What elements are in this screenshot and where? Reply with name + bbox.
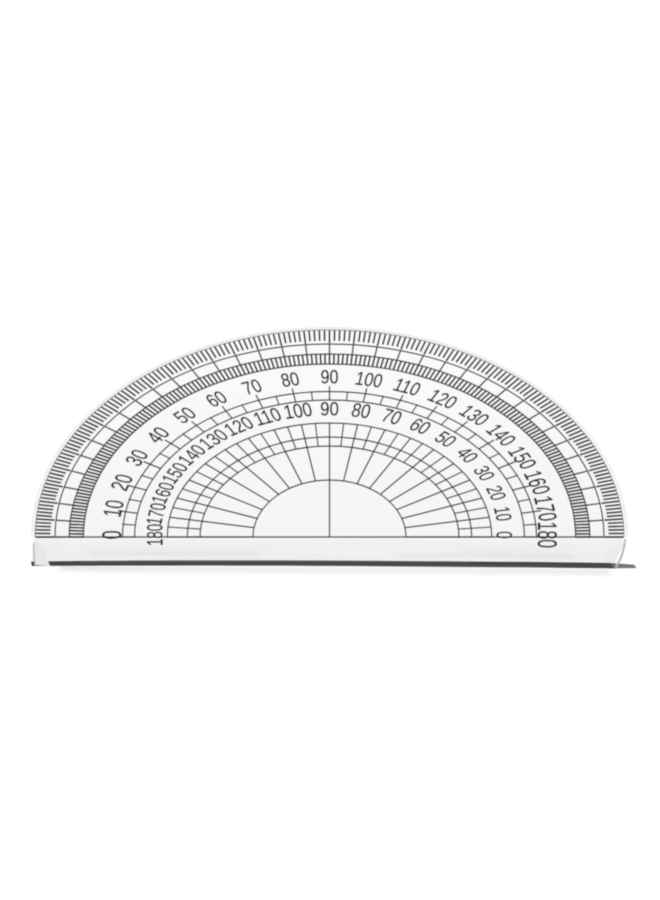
svg-text:90: 90 bbox=[321, 366, 339, 388]
svg-text:100: 100 bbox=[353, 367, 385, 391]
svg-text:180: 180 bbox=[142, 524, 167, 546]
svg-text:10: 10 bbox=[489, 505, 517, 522]
svg-text:10: 10 bbox=[98, 499, 130, 519]
svg-text:90: 90 bbox=[320, 397, 339, 420]
svg-text:100: 100 bbox=[281, 398, 314, 423]
